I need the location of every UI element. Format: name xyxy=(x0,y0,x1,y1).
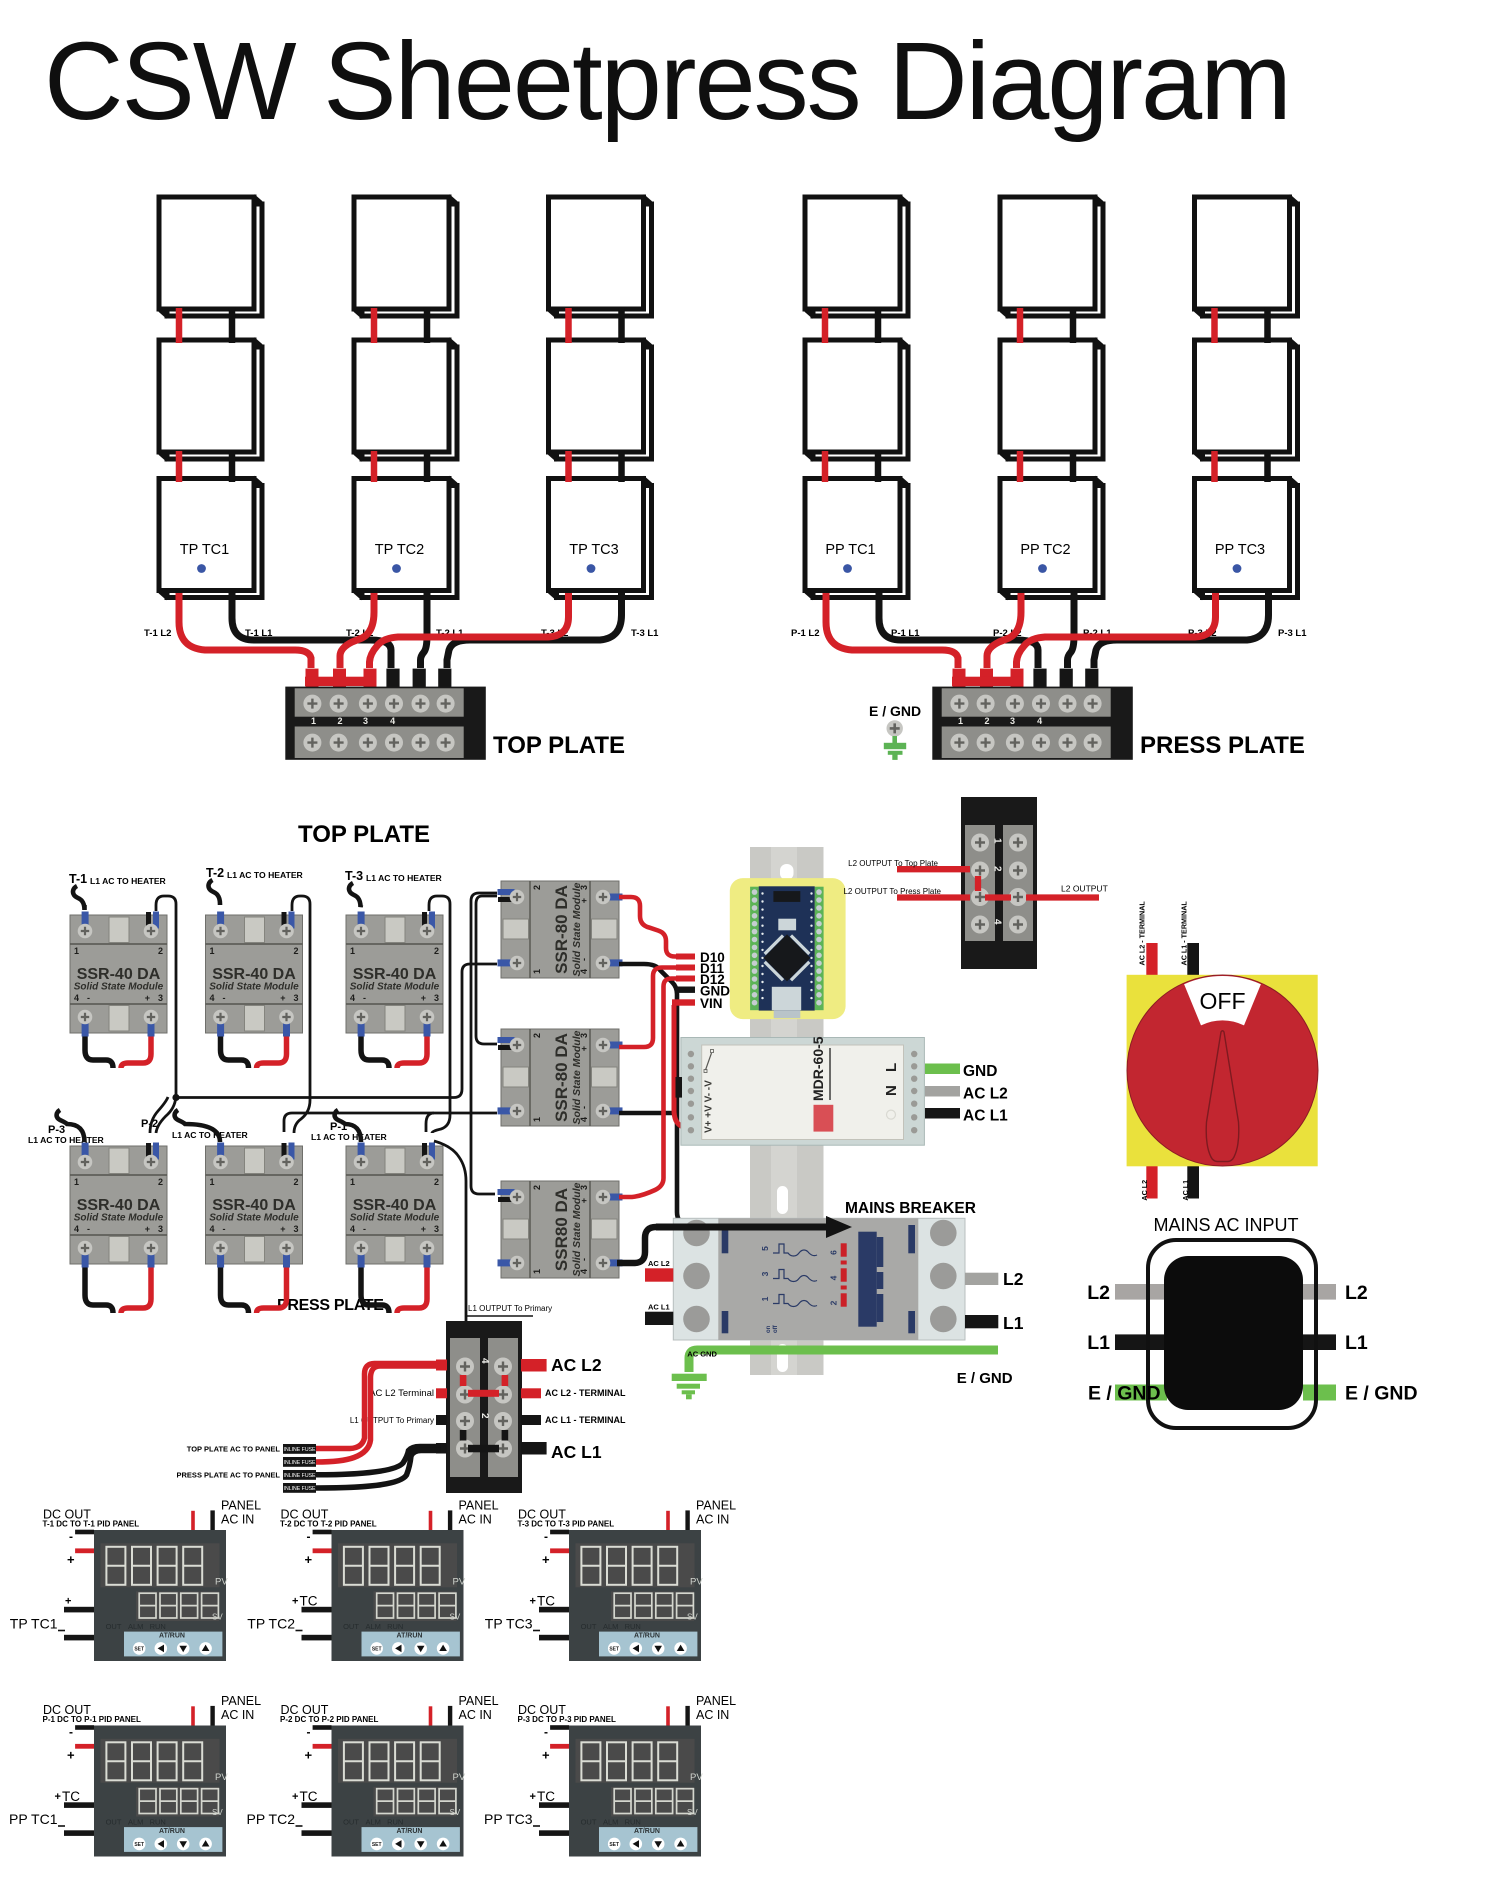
svg-text:AC L1: AC L1 xyxy=(963,1108,1008,1125)
svg-text:+: + xyxy=(55,1791,61,1803)
svg-text:off: off xyxy=(773,1324,779,1333)
svg-text:L1: L1 xyxy=(1087,1332,1110,1354)
svg-text:P-1 DC TO P-1 PID PANEL: P-1 DC TO P-1 PID PANEL xyxy=(353,1326,437,1333)
svg-text:6: 6 xyxy=(829,1250,839,1255)
svg-text:+: + xyxy=(530,1596,536,1608)
svg-text:2: 2 xyxy=(992,866,1003,872)
svg-text:PP TC1: PP TC1 xyxy=(825,542,875,558)
svg-text:Solid State Module: Solid State Module xyxy=(74,982,164,993)
svg-text:5: 5 xyxy=(760,1246,770,1251)
svg-text:AC L1: AC L1 xyxy=(551,1442,602,1462)
svg-text:L1 AC TO HEATER: L1 AC TO HEATER xyxy=(90,876,167,886)
svg-text:-: - xyxy=(383,1066,387,1081)
svg-text:3: 3 xyxy=(760,1271,770,1276)
svg-text:1: 1 xyxy=(992,838,1003,844)
svg-text:-: - xyxy=(107,1311,111,1326)
svg-text:+: + xyxy=(65,1596,71,1608)
svg-text:Solid State Module: Solid State Module xyxy=(350,1213,440,1224)
svg-text:PRESS PLATE: PRESS PLATE xyxy=(1140,732,1305,759)
svg-text:Solid State Module: Solid State Module xyxy=(571,1182,583,1276)
svg-text:MAINS AC INPUT: MAINS AC INPUT xyxy=(1153,1215,1298,1235)
svg-text:PP TC3: PP TC3 xyxy=(1215,542,1265,558)
svg-text:MAINS BREAKER: MAINS BREAKER xyxy=(845,1200,976,1217)
svg-text:-: - xyxy=(243,1066,247,1081)
svg-text:V+ +V V- -V: V+ +V V- -V xyxy=(704,1080,715,1133)
svg-text:2: 2 xyxy=(829,1300,839,1305)
svg-text:AC GND: AC GND xyxy=(687,1350,717,1359)
svg-text:SSR-40 DA: SSR-40 DA xyxy=(77,966,161,983)
svg-text:on: on xyxy=(766,1325,772,1333)
svg-text:TOP PLATE AC TO PANEL: TOP PLATE AC TO PANEL xyxy=(187,1445,281,1454)
svg-text:AC L2 - TERMINAL: AC L2 - TERMINAL xyxy=(545,1388,626,1398)
svg-text:AC L2: AC L2 xyxy=(963,1086,1008,1103)
svg-text:INLINE FUSE: INLINE FUSE xyxy=(284,1447,317,1453)
svg-text:PP TC1: PP TC1 xyxy=(9,1811,58,1827)
svg-text:PRESS PLATE AC TO PANEL: PRESS PLATE AC TO PANEL xyxy=(177,1471,281,1480)
svg-text:N: N xyxy=(883,1085,900,1096)
svg-text:VIN: VIN xyxy=(700,996,723,1011)
svg-text:T-3 DC TO T-3 PID PANEL: T-3 DC TO T-3 PID PANEL xyxy=(78,1080,160,1087)
svg-text:+: + xyxy=(398,1066,406,1081)
svg-text:AC L1 - TERMINAL: AC L1 - TERMINAL xyxy=(545,1415,626,1425)
svg-text:L1 AC TO HEATER: L1 AC TO HEATER xyxy=(366,873,443,883)
svg-text:AC L2: AC L2 xyxy=(648,1259,670,1268)
svg-text:PP TC2: PP TC2 xyxy=(246,1811,295,1827)
svg-text:L1 AC TO HEATER: L1 AC TO HEATER xyxy=(227,870,304,880)
svg-text:+: + xyxy=(257,1311,265,1326)
svg-text:-: - xyxy=(383,1311,387,1326)
svg-text:AC L2: AC L2 xyxy=(1140,1180,1149,1201)
svg-text:L1 AC TO HEATER: L1 AC TO HEATER xyxy=(311,1132,388,1142)
svg-text:TP TC2: TP TC2 xyxy=(247,1616,295,1632)
svg-text:Solid State Module: Solid State Module xyxy=(571,882,583,976)
svg-text:+: + xyxy=(257,1066,265,1081)
svg-text:GND: GND xyxy=(963,1063,997,1080)
svg-text:T-3 L1: T-3 L1 xyxy=(631,628,659,639)
svg-text:AC L1: AC L1 xyxy=(1181,1180,1190,1201)
svg-text:TOP PLATE: TOP PLATE xyxy=(493,732,625,759)
svg-text:+: + xyxy=(292,1596,298,1608)
svg-text:T-2 DC TO T-2 PID PANEL: T-2 DC TO T-2 PID PANEL xyxy=(213,1080,295,1087)
svg-text:L2 OUTPUT To Top Plate: L2 OUTPUT To Top Plate xyxy=(848,859,938,868)
svg-text:T-1 L2: T-1 L2 xyxy=(144,628,171,639)
svg-text:PP TC2: PP TC2 xyxy=(1020,542,1070,558)
svg-text:L2 OUTPUT: L2 OUTPUT xyxy=(1061,884,1108,894)
svg-text:L1 AC TO HEATER: L1 AC TO HEATER xyxy=(28,1135,105,1145)
svg-text:T-2 DC TO T-2 PID PANEL: T-2 DC TO T-2 PID PANEL xyxy=(280,1520,377,1529)
svg-text:SSR-40 DA: SSR-40 DA xyxy=(212,1197,296,1214)
svg-text:CSW Sheetpress Diagram: CSW Sheetpress Diagram xyxy=(44,20,1290,143)
svg-text:T-1: T-1 xyxy=(69,872,87,886)
svg-text:4: 4 xyxy=(829,1275,839,1280)
svg-text:P-3 DC TO P-3 PID PANEL: P-3 DC TO P-3 PID PANEL xyxy=(77,1326,161,1333)
svg-text:AC L1: AC L1 xyxy=(648,1303,670,1312)
svg-text:P-1 L2: P-1 L2 xyxy=(791,628,820,639)
svg-text:Solid State Module: Solid State Module xyxy=(571,1030,583,1124)
svg-text:P-3 DC TO P-3 PID PANEL: P-3 DC TO P-3 PID PANEL xyxy=(518,1715,617,1724)
svg-text:SSR-40 DA: SSR-40 DA xyxy=(212,966,296,983)
svg-text:TC: TC xyxy=(62,1789,80,1804)
svg-text:T-1 DC TO T-1 PID PANEL: T-1 DC TO T-1 PID PANEL xyxy=(354,1080,436,1087)
svg-text:L1: L1 xyxy=(1003,1313,1024,1333)
svg-text:SSR-40 DA: SSR-40 DA xyxy=(77,1197,161,1214)
svg-text:-: - xyxy=(107,1066,111,1081)
svg-text:Solid State Module: Solid State Module xyxy=(74,1213,164,1224)
svg-text:INLINE FUSE: INLINE FUSE xyxy=(284,1473,317,1479)
svg-text:T-1 DC TO T-1 PID PANEL: T-1 DC TO T-1 PID PANEL xyxy=(43,1520,140,1529)
svg-text:E / GND: E / GND xyxy=(957,1370,1013,1387)
svg-text:PP TC3: PP TC3 xyxy=(484,1811,533,1827)
svg-text:E / GND: E / GND xyxy=(1345,1383,1418,1405)
svg-text:MDR-60-5: MDR-60-5 xyxy=(810,1036,826,1101)
svg-text:AC L2: AC L2 xyxy=(551,1355,602,1375)
svg-text:TC: TC xyxy=(537,1789,555,1804)
svg-text:E / GND: E / GND xyxy=(869,703,921,719)
svg-text:TOP PLATE: TOP PLATE xyxy=(298,821,430,848)
svg-text:TP TC1: TP TC1 xyxy=(180,542,229,558)
svg-text:SSR-80 DA: SSR-80 DA xyxy=(552,1033,571,1122)
svg-text:+: + xyxy=(398,1311,406,1326)
svg-text:L2 OUTPUT To Press Plate: L2 OUTPUT To Press Plate xyxy=(843,887,941,896)
svg-text:1: 1 xyxy=(760,1296,770,1301)
svg-text:SSR-40 DA: SSR-40 DA xyxy=(353,966,437,983)
svg-text:AC L1 - TERMINAL: AC L1 - TERMINAL xyxy=(1179,901,1188,966)
svg-text:2: 2 xyxy=(479,1413,490,1419)
svg-text:L2: L2 xyxy=(1087,1282,1110,1304)
svg-text:TP TC1: TP TC1 xyxy=(10,1616,58,1632)
svg-text:SSR-80 DA: SSR-80 DA xyxy=(552,885,571,974)
svg-text:INLINE FUSE: INLINE FUSE xyxy=(284,1460,317,1466)
svg-text:+: + xyxy=(122,1066,130,1081)
svg-text:TC: TC xyxy=(537,1594,555,1609)
svg-text:4: 4 xyxy=(479,1358,490,1364)
svg-text:T-3 DC TO T-3 PID PANEL: T-3 DC TO T-3 PID PANEL xyxy=(518,1520,615,1529)
svg-text:L2: L2 xyxy=(1345,1282,1368,1304)
svg-text:-: - xyxy=(243,1311,247,1326)
svg-text:P-3 L1: P-3 L1 xyxy=(1278,628,1307,639)
svg-text:L: L xyxy=(883,1063,900,1072)
svg-text:TP TC2: TP TC2 xyxy=(375,542,424,558)
svg-text:TP TC3: TP TC3 xyxy=(485,1616,533,1632)
svg-text:OFF: OFF xyxy=(1200,988,1246,1014)
svg-text:+: + xyxy=(122,1311,130,1326)
svg-text:+: + xyxy=(530,1791,536,1803)
svg-text:SSR-40 DA: SSR-40 DA xyxy=(353,1197,437,1214)
svg-text:AC L2 - TERMINAL: AC L2 - TERMINAL xyxy=(1138,901,1147,966)
svg-text:Solid State Module: Solid State Module xyxy=(209,1213,299,1224)
svg-text:AC L2 Terminal: AC L2 Terminal xyxy=(369,1388,434,1399)
svg-text:4: 4 xyxy=(992,919,1003,925)
svg-text:TC: TC xyxy=(300,1789,318,1804)
svg-text:TP TC3: TP TC3 xyxy=(569,542,618,558)
svg-text:L1 AC TO HEATER: L1 AC TO HEATER xyxy=(172,1130,249,1140)
svg-text:INLINE FUSE: INLINE FUSE xyxy=(284,1486,317,1492)
svg-text:Solid State Module: Solid State Module xyxy=(209,982,299,993)
svg-text:L2: L2 xyxy=(1003,1269,1024,1289)
svg-text:SSR80 DA: SSR80 DA xyxy=(552,1188,571,1271)
svg-text:Solid State Module: Solid State Module xyxy=(350,982,440,993)
svg-text:T-2: T-2 xyxy=(206,866,224,880)
svg-text:L1 OUTPUT To Primary: L1 OUTPUT To Primary xyxy=(468,1304,552,1313)
svg-text:P-2 DC TO P-2 PID PANEL: P-2 DC TO P-2 PID PANEL xyxy=(213,1326,297,1333)
svg-text:L1: L1 xyxy=(1345,1332,1368,1354)
svg-text:P-2 DC TO P-2 PID PANEL: P-2 DC TO P-2 PID PANEL xyxy=(280,1715,379,1724)
svg-text:T-3: T-3 xyxy=(345,869,363,883)
svg-text:E / GND: E / GND xyxy=(1088,1383,1161,1405)
svg-text:P-1 DC TO P-1 PID PANEL: P-1 DC TO P-1 PID PANEL xyxy=(43,1715,142,1724)
svg-text:+: + xyxy=(292,1791,298,1803)
svg-text:TC: TC xyxy=(300,1594,318,1609)
